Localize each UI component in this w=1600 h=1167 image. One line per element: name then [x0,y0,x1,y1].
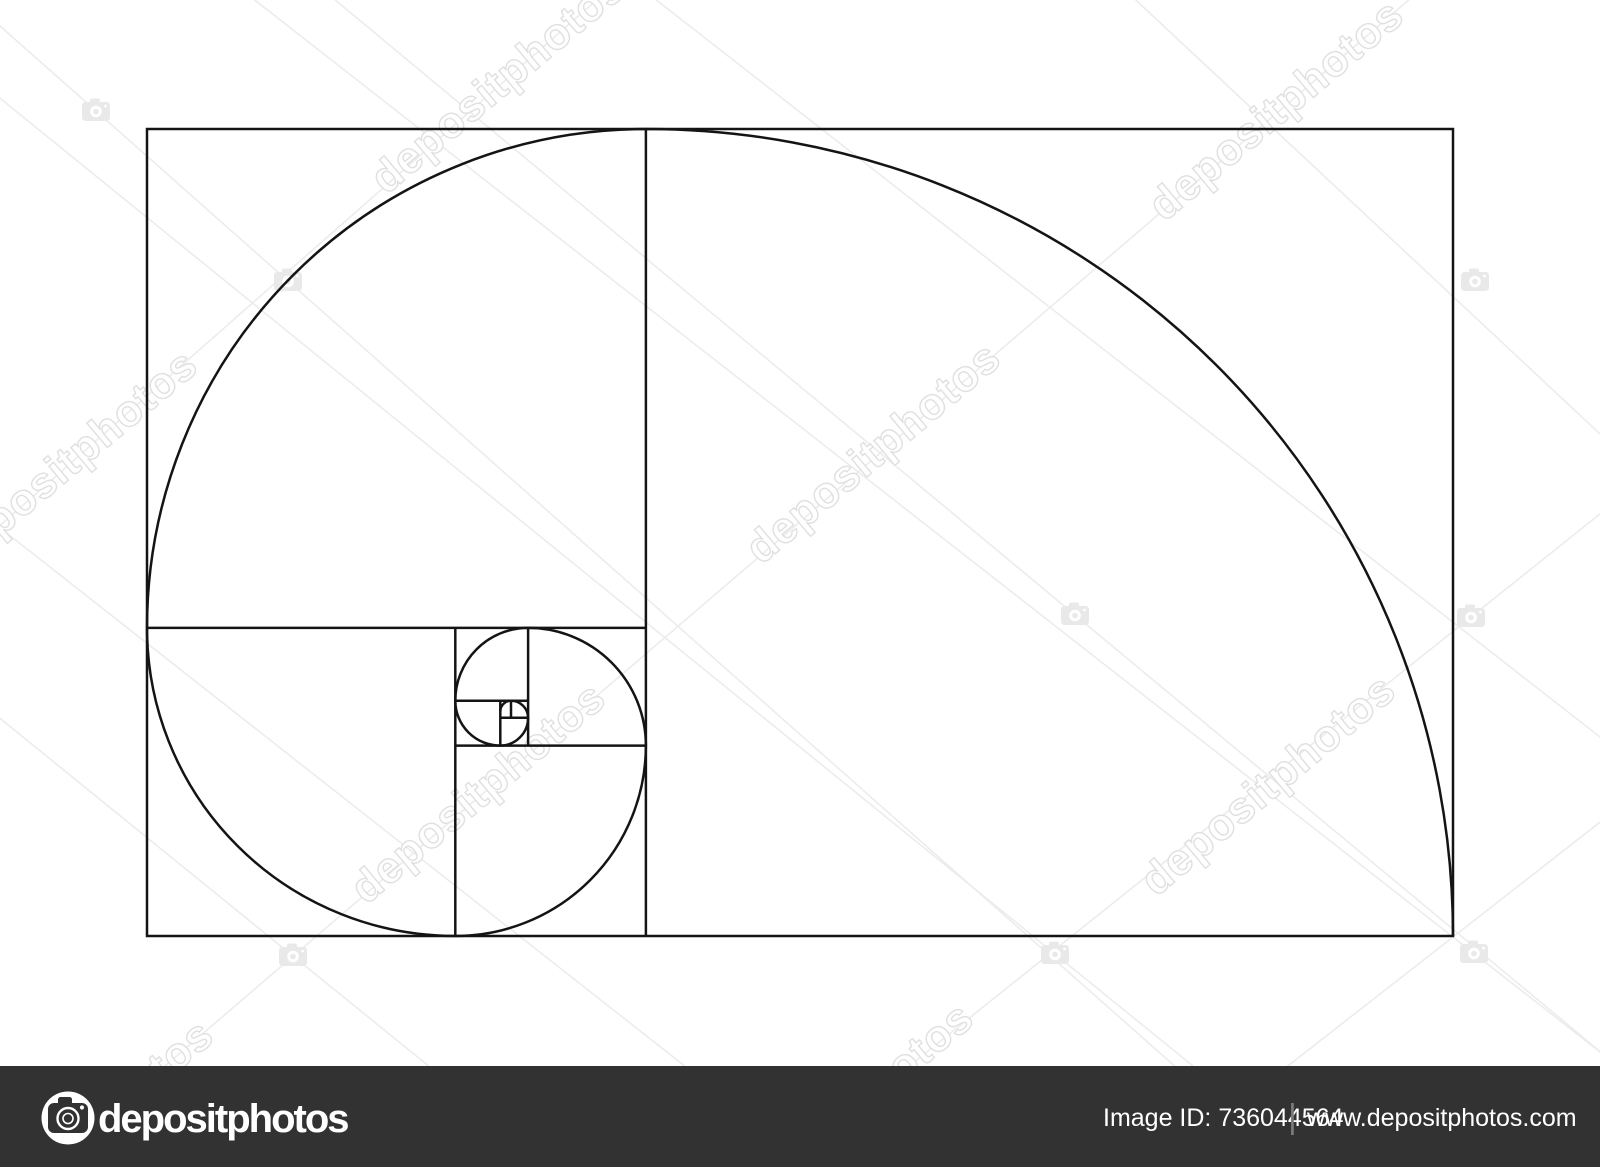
logo-wordmark: depositphotos [98,1097,348,1141]
footer-separator: | [1288,1098,1297,1136]
page-background [0,0,1600,1167]
watermark-footer-bar: depositphotos Image ID: 736044564 | www.… [0,1066,1600,1167]
stock-image-canvas: depositphotosdepositphotosdepositphotosd… [0,0,1600,1167]
logo-flash-dot [80,1105,84,1109]
website-text: www.depositphotos.com [1306,1104,1577,1132]
